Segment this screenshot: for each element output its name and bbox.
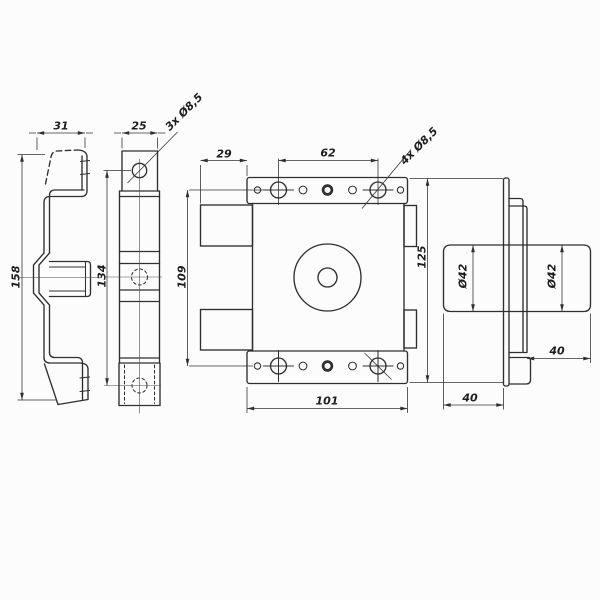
dim-label-62: 62 [320,147,335,160]
latchbolt-front [201,310,253,351]
dim-label-134: 134 [96,265,109,288]
bottom-foot [509,358,531,385]
strike-plate-front-view [104,151,162,414]
faceplate-edge [504,178,510,386]
dim-label-101: 101 [316,395,339,408]
dim-label-dia42-outer: Ø42 [457,264,470,289]
top-hole-row [254,182,403,198]
dim-label-40-outer: 40 [462,392,477,405]
dim-label-31: 31 [53,120,68,133]
dim-label-dia42-inner: Ø42 [546,264,559,289]
dim-label-109: 109 [176,266,189,289]
technical-drawing-page: 31 158 25 3x Ø8,5 134 29 62 4x Ø8,5 109 … [0,0,600,600]
bottom-hole-row [254,351,403,382]
dim-label-158: 158 [10,266,23,289]
dim-label-29: 29 [216,148,231,161]
lock-body-front-view [201,178,417,384]
technical-drawing-canvas [0,0,600,600]
deadbolt-front [201,205,253,246]
dim-label-40-inner: 40 [549,345,564,358]
leader-3x-holes [128,132,178,183]
dim-label-125: 125 [416,246,429,269]
dim-label-25: 25 [131,120,146,133]
inner-cylinder [527,245,591,312]
cylinder-boss [294,244,361,311]
cylinder-hole [318,268,337,287]
outer-cylinder [444,245,504,312]
side-profile-view [17,150,101,405]
